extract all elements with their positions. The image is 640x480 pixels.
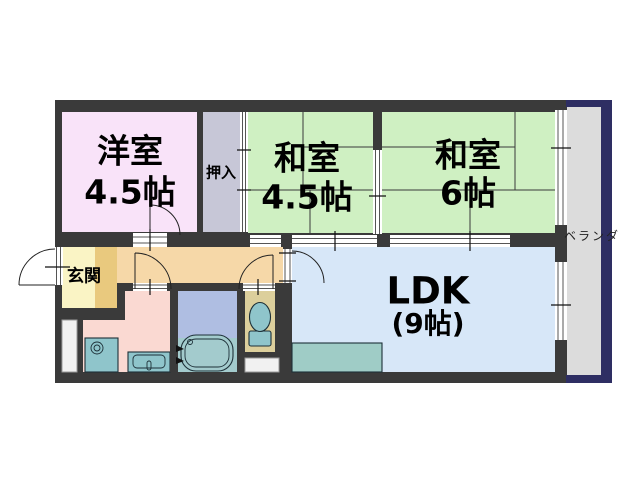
floor-plan-drawing — [0, 0, 640, 480]
label-closet: 押入 — [206, 166, 236, 181]
label-entrance: 玄関 — [67, 269, 101, 286]
entrance-opening — [54, 247, 63, 285]
wall-below-entrance — [55, 308, 125, 320]
wall-between-washitsu — [373, 112, 382, 150]
toilet — [250, 303, 271, 332]
label-western-room: 洋室 — [97, 135, 163, 168]
label-japanese-6: 和室 — [435, 139, 501, 172]
toilet-wall-bottom — [245, 352, 275, 358]
ldk-door-leaf — [283, 249, 292, 283]
label-western-room-size: 4.5帖 — [84, 176, 175, 209]
floor-plan: 洋室 4.5帖 押入 和室 4.5帖 和室 6帖 LDK (9帖) 玄関 ベラン… — [0, 0, 640, 480]
bathtub — [181, 335, 233, 371]
window-washitsu6 — [555, 110, 567, 225]
toilet-wall-left — [237, 291, 245, 372]
label-ldk-size: (9帖) — [391, 310, 464, 338]
sliding-door-washitsu — [373, 150, 382, 234]
pipe-space — [62, 320, 77, 372]
pipe-space-wall — [77, 308, 83, 372]
kitchen-counter — [292, 343, 382, 372]
label-veranda: ベランダ — [564, 230, 620, 242]
toilet-tank — [249, 331, 271, 346]
label-japanese-45: 和室 — [274, 142, 340, 175]
label-japanese-6-size: 6帖 — [440, 177, 496, 210]
sliding-opening-a-jamb — [281, 235, 292, 247]
sliding-opening-a — [250, 235, 377, 247]
toilet-lower-space — [245, 358, 279, 372]
hallway — [117, 247, 283, 283]
toilet-wall-right — [275, 283, 283, 358]
sliding-opening-b — [390, 235, 510, 247]
window-ldk — [555, 262, 567, 340]
label-ldk: LDK — [387, 273, 470, 310]
toilet-door-opening — [243, 283, 275, 291]
sliding-door-closet — [240, 112, 248, 232]
wall-entrance-side — [117, 283, 125, 320]
label-japanese-45-size: 4.5帖 — [261, 181, 352, 214]
washing-machine-pan — [85, 338, 118, 372]
bathroom-upper — [178, 291, 237, 338]
